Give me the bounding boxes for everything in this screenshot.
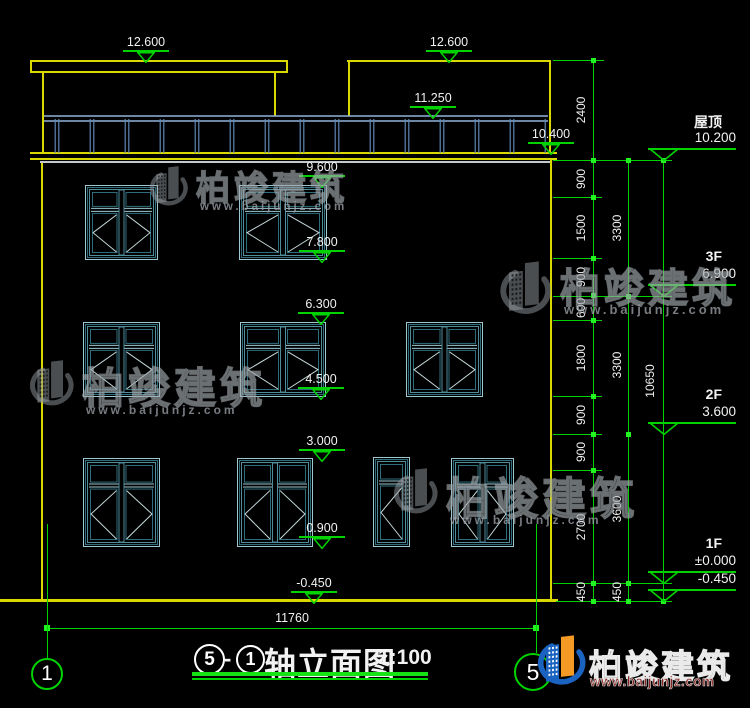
floor-marker-triangle [649,148,679,161]
elevation-marker-value: 4.500 [289,372,353,386]
elevation-marker-triangle [137,50,155,61]
title-underline-thick [192,672,428,676]
extension-line [553,60,604,61]
watermark-url: www.baijunjz.com [450,513,602,527]
dim-label: 450 [574,582,588,602]
dim-label: 3300 [610,352,624,379]
window [83,458,160,547]
floor-marker-triangle [649,422,679,435]
dim-label: 900 [574,405,588,425]
railing-svg [44,115,548,154]
roof-railing [44,115,548,154]
dim-tick [591,432,596,437]
logo-svg [28,359,76,414]
window-svg [83,458,160,547]
dim-tick [591,195,596,200]
dim-label: 900 [574,442,588,462]
window-svg [406,322,483,397]
title-dash: - [224,646,231,672]
watermark-logo-icon [28,359,76,419]
elevation-marker-triangle [313,536,331,547]
floor-marker-value: 10.200 [658,130,736,145]
dim-tick [591,158,596,163]
elevation-marker-value: -0.450 [282,576,346,590]
grid-bubble-1: 1 [31,658,63,690]
dim-label: 2400 [574,97,588,124]
watermark-url: www.baijunjz.com [86,403,238,417]
floor-marker-label: 屋顶 [662,112,722,132]
dim-label: 1500 [574,214,588,241]
dim-label: 3300 [610,215,624,242]
floor-marker-value: -0.450 [658,571,736,586]
watermark-logo-icon [498,260,554,329]
right-parapet-left [348,62,350,116]
elevation-marker-triangle [542,142,560,153]
brand-logo-icon [536,634,588,699]
elevation-marker-triangle [313,250,331,261]
floor-marker-triangle [649,589,679,602]
dim-tick [591,318,596,323]
drawing-scale: 1:100 [378,646,432,670]
elevation-marker-value: 10.400 [519,127,583,141]
dim-tick [626,432,631,437]
brand-url: www.baijunjz.com [590,674,715,689]
logo-svg [536,634,588,694]
elevation-marker-value: 12.600 [114,35,178,49]
dim-tick [591,581,596,586]
dim-tick [626,158,631,163]
window [406,322,483,397]
elevation-drawing-canvas: 2400900150090060018009009002700450330033… [0,0,750,708]
dim-label: 450 [610,582,624,602]
logo-svg [392,467,440,522]
floor-marker-value: ±0.000 [658,553,736,568]
floor-marker-value: 3.600 [658,404,736,419]
elevation-marker-value: 3.000 [290,434,354,448]
dim-tick [591,394,596,399]
logo-svg [498,260,554,324]
grid-line-1 [47,524,48,658]
elevation-marker-value: 6.300 [289,297,353,311]
dim-tick [591,58,596,63]
dim-tick [591,599,596,604]
dim-tick [626,581,631,586]
floor-marker-label: 2F [662,386,722,402]
elevation-marker-value: 7.800 [290,235,354,249]
building-wall-right [550,160,552,599]
title-axis-bubble-start: 5 [194,644,225,675]
elevation-marker-triangle [305,591,323,602]
dim-tick [626,599,631,604]
overall-dimension-text: 11760 [262,611,322,625]
elevation-marker-value: 0.900 [290,521,354,535]
left-roof-slab [30,60,288,73]
logo-svg [148,165,190,213]
ground-line [0,599,558,602]
elevation-marker-value: 11.250 [401,91,465,105]
watermark-url: www.baijunjz.com [200,201,347,213]
elevation-marker-triangle [312,387,330,398]
watermark-url: www.baijunjz.com [564,302,724,317]
elevation-marker-triangle [312,312,330,323]
grid-bubble-1-label: 1 [41,662,53,685]
title-axis-start-label: 5 [204,649,215,670]
overall-dimension-line [47,628,536,629]
title-axis-end-label: 1 [245,649,255,669]
watermark-logo-icon [392,467,440,527]
floor-marker-label: 1F [662,535,722,551]
dim-label: 900 [574,168,588,188]
elevation-marker-triangle [424,106,442,117]
elevation-marker-value: 12.600 [417,35,481,49]
left-bulkhead-wall-right [274,73,276,116]
title-axis-bubble-end: 1 [236,645,265,674]
watermark-logo-icon [148,165,190,218]
elevation-marker-triangle [313,449,331,460]
title-underline-thin [192,678,428,680]
elevation-marker-triangle [440,50,458,61]
dim-chain-line [628,160,629,601]
dim-label: 10650 [643,364,657,397]
dim-label: 1800 [574,345,588,372]
